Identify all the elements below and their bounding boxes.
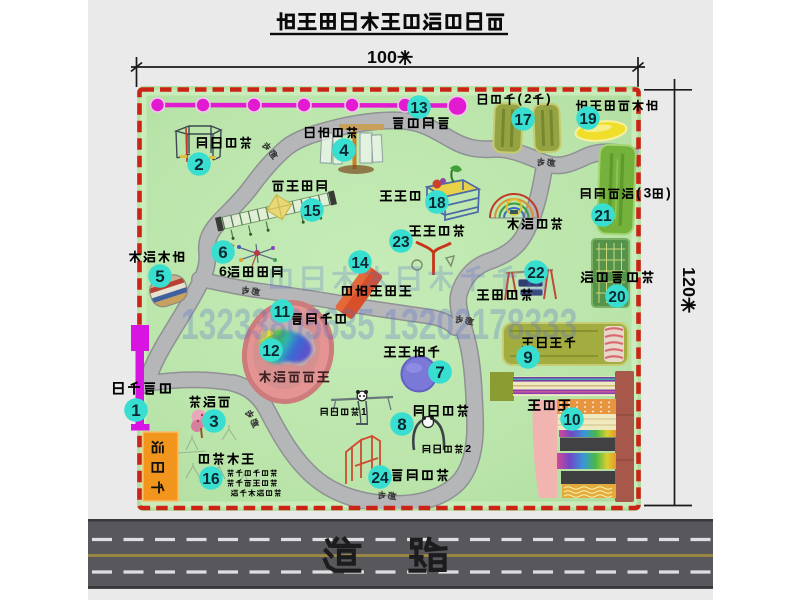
svg-text:1: 1: [131, 401, 140, 420]
svg-text:6: 6: [219, 264, 227, 280]
svg-text:17: 17: [514, 112, 531, 129]
svg-text:22: 22: [527, 265, 544, 282]
svg-text:13233805635 13202178333: 13233805635 13202178333: [181, 300, 577, 349]
svg-text:4: 4: [339, 141, 349, 160]
svg-text:7: 7: [435, 363, 444, 382]
svg-text:19: 19: [579, 111, 597, 128]
svg-text:): ): [546, 91, 550, 106]
svg-text:): ): [666, 186, 671, 201]
svg-text:6: 6: [218, 243, 227, 262]
svg-text:20: 20: [608, 289, 625, 306]
svg-text:10: 10: [563, 412, 580, 429]
svg-text:13: 13: [410, 100, 428, 117]
svg-text:23: 23: [392, 234, 410, 251]
svg-text:5: 5: [155, 267, 164, 286]
svg-text:100: 100: [367, 47, 397, 67]
svg-text:(2: (2: [518, 91, 532, 106]
svg-text:18: 18: [428, 195, 446, 212]
svg-text:9: 9: [523, 348, 532, 367]
svg-text:15: 15: [303, 203, 321, 220]
svg-text:120: 120: [679, 267, 699, 297]
svg-text:3: 3: [209, 412, 218, 431]
svg-text:2: 2: [465, 443, 471, 455]
svg-text:12: 12: [262, 343, 279, 360]
svg-text:24: 24: [371, 470, 389, 487]
svg-text:14: 14: [351, 255, 369, 272]
svg-text:11: 11: [274, 304, 291, 321]
svg-text:21: 21: [594, 208, 612, 225]
svg-text:8: 8: [397, 415, 406, 434]
svg-text:1: 1: [361, 407, 367, 418]
svg-text:(3: (3: [636, 186, 651, 201]
svg-text:2: 2: [194, 155, 203, 174]
svg-text:16: 16: [202, 471, 220, 488]
